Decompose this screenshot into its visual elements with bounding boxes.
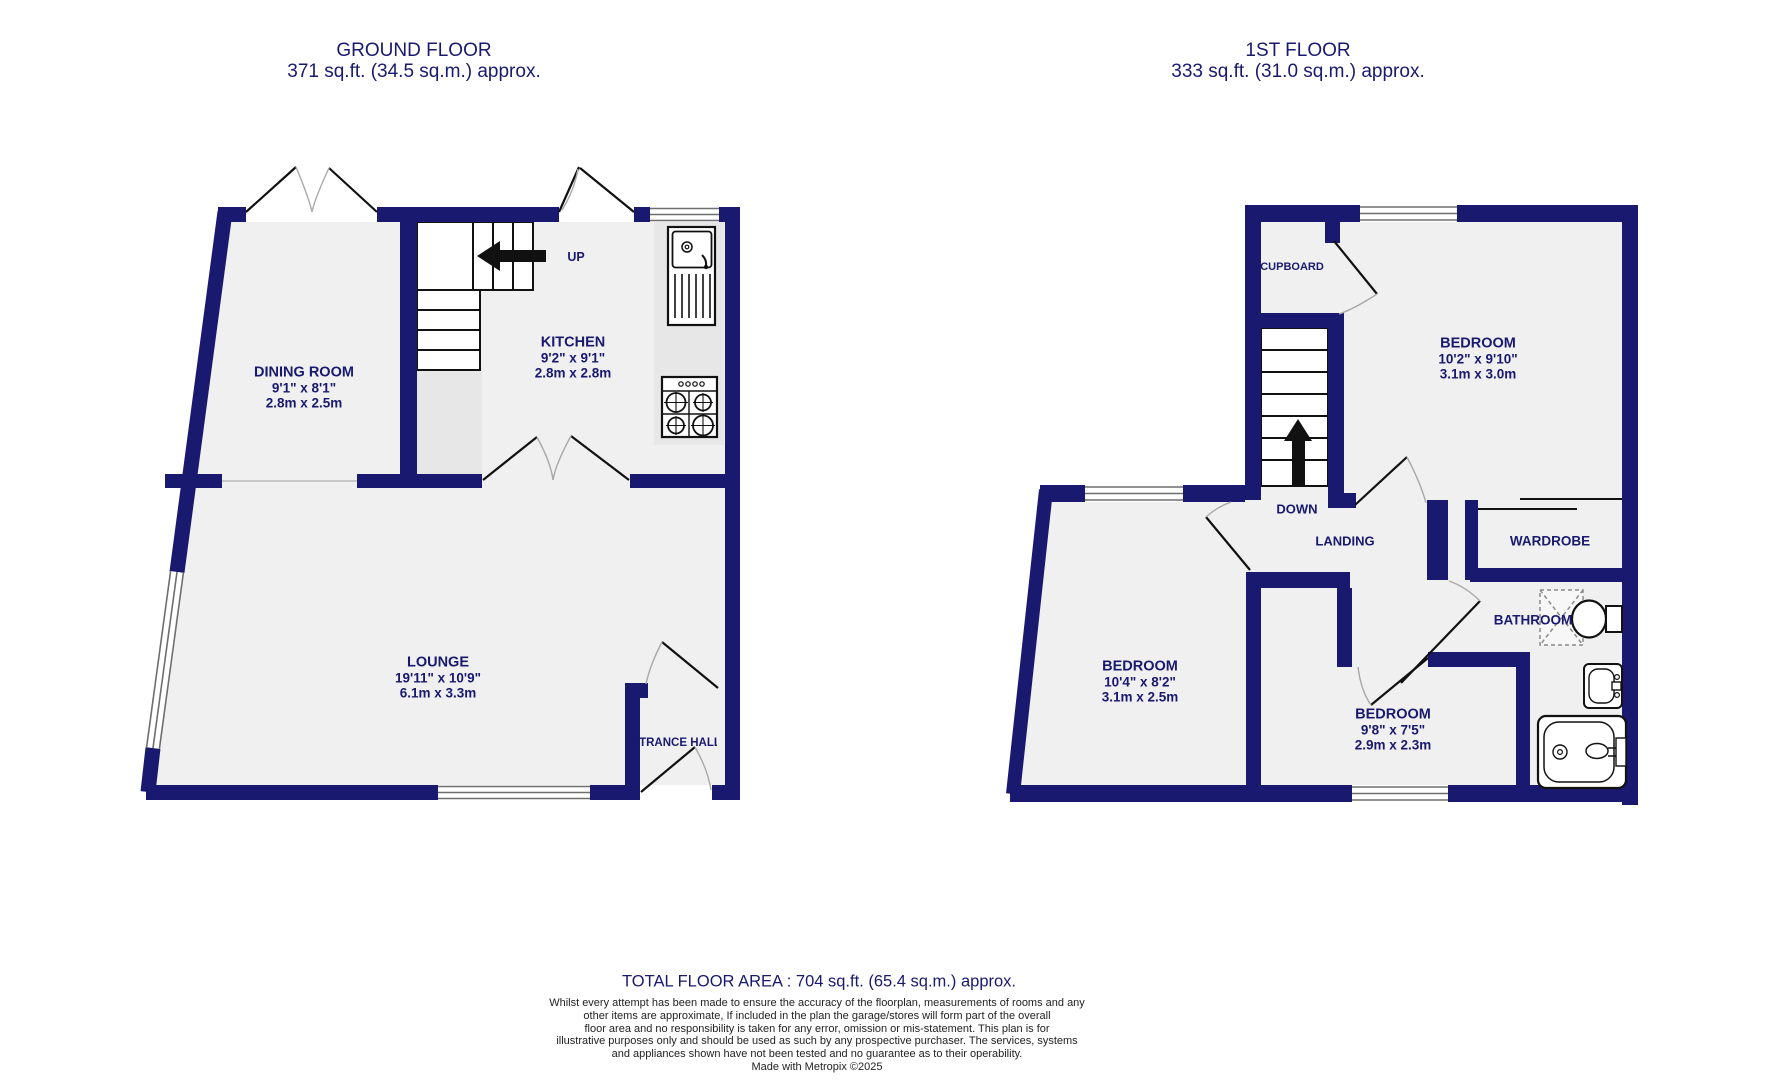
ground-floor-title-line: GROUND FLOOR	[287, 40, 540, 61]
understairs-area	[417, 368, 482, 474]
ground-floor-area-line: 371 sq.ft. (34.5 sq.m.) approx.	[287, 61, 540, 82]
floorplan-canvas	[0, 0, 1774, 1080]
room-label-cupboard: CUPBOARD	[1260, 261, 1324, 273]
basin-icon	[1584, 664, 1622, 708]
first-floor-area	[1016, 214, 1630, 796]
room-label-landing: LANDING	[1315, 534, 1374, 549]
room-label-kitchen: KITCHEN 9'2" x 9'1" 2.8m x 2.8m	[535, 336, 612, 381]
room-label-wardrobe: WARDROBE	[1510, 534, 1590, 549]
hob-icon	[662, 377, 717, 437]
stairs-down-label: DOWN	[1276, 502, 1317, 517]
first-floor-title-line: 1ST FLOOR	[1171, 40, 1424, 61]
first-stairs	[1261, 328, 1328, 486]
first-floor-title: 1ST FLOOR 333 sq.ft. (31.0 sq.m.) approx…	[1171, 40, 1424, 82]
bathtub-icon	[1538, 716, 1626, 788]
disclaimer-text: Whilst every attempt has been made to en…	[549, 997, 1085, 1061]
room-label-dining: DINING ROOM 9'1" x 8'1" 2.8m x 2.5m	[254, 366, 354, 411]
room-label-bedroom-middle: BEDROOM 9'8" x 7'5" 2.9m x 2.3m	[1355, 708, 1432, 753]
floorplan-page: GROUND FLOOR 371 sq.ft. (34.5 sq.m.) app…	[0, 0, 1774, 1080]
room-label-lounge: LOUNGE 19'11" x 10'9" 6.1m x 3.3m	[395, 656, 481, 701]
room-label-bedroom-left: BEDROOM 10'4" x 8'2" 3.1m x 2.5m	[1102, 660, 1179, 705]
ground-floor-plan	[146, 167, 740, 800]
first-floor-plan	[1010, 205, 1638, 805]
stairs-up-label: UP	[567, 250, 584, 264]
total-floor-area: TOTAL FLOOR AREA : 704 sq.ft. (65.4 sq.m…	[622, 973, 1016, 992]
toilet-icon	[1572, 601, 1622, 638]
kitchen-sink-icon	[668, 227, 715, 325]
ground-floor-title: GROUND FLOOR 371 sq.ft. (34.5 sq.m.) app…	[287, 40, 540, 82]
metropix-credit: Made with Metropix ©2025	[751, 1061, 882, 1073]
first-floor-area-line: 333 sq.ft. (31.0 sq.m.) approx.	[1171, 61, 1424, 82]
room-label-bedroom-top: BEDROOM 10'2" x 9'10" 3.1m x 3.0m	[1438, 337, 1517, 382]
room-label-bathroom: BATHROOM	[1494, 613, 1573, 628]
room-label-entrance-hall: ENTRANCE HALL	[627, 734, 717, 752]
